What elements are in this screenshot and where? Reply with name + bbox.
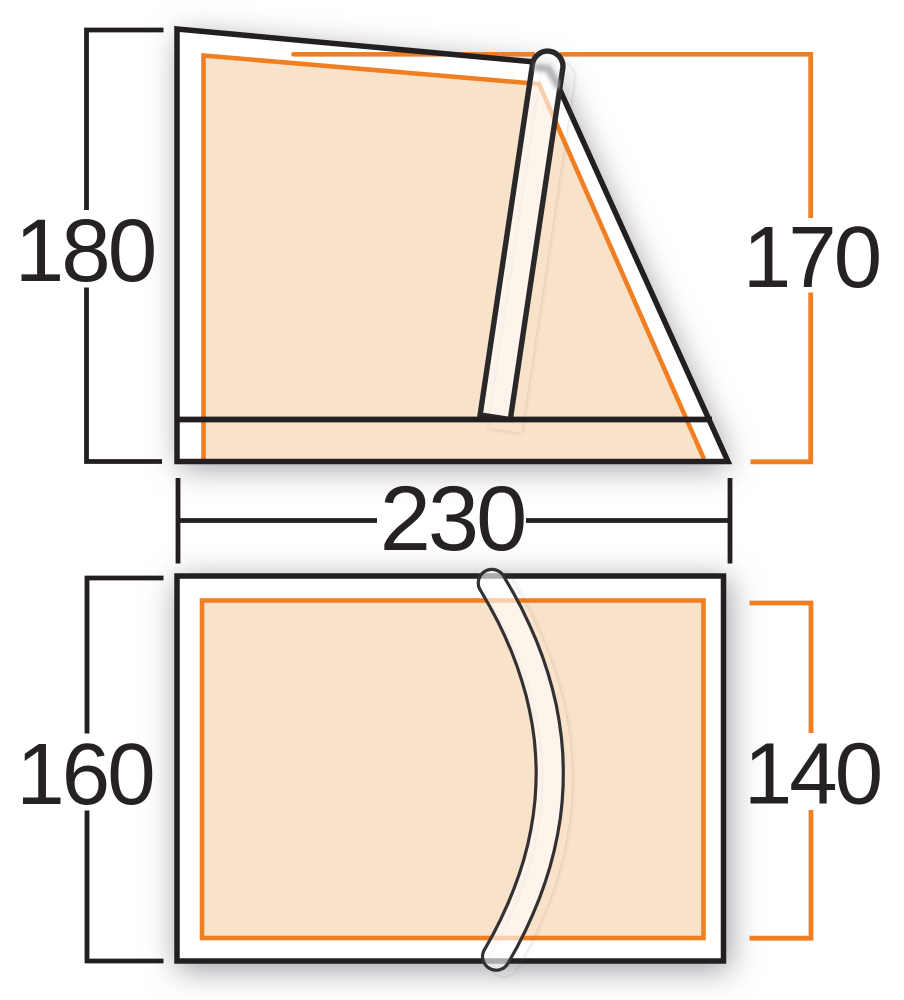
svg-text:180: 180 [15, 200, 155, 300]
svg-text:230: 230 [380, 468, 525, 570]
svg-text:170: 170 [743, 209, 879, 306]
svg-text:140: 140 [744, 726, 880, 823]
svg-text:160: 160 [16, 726, 152, 823]
